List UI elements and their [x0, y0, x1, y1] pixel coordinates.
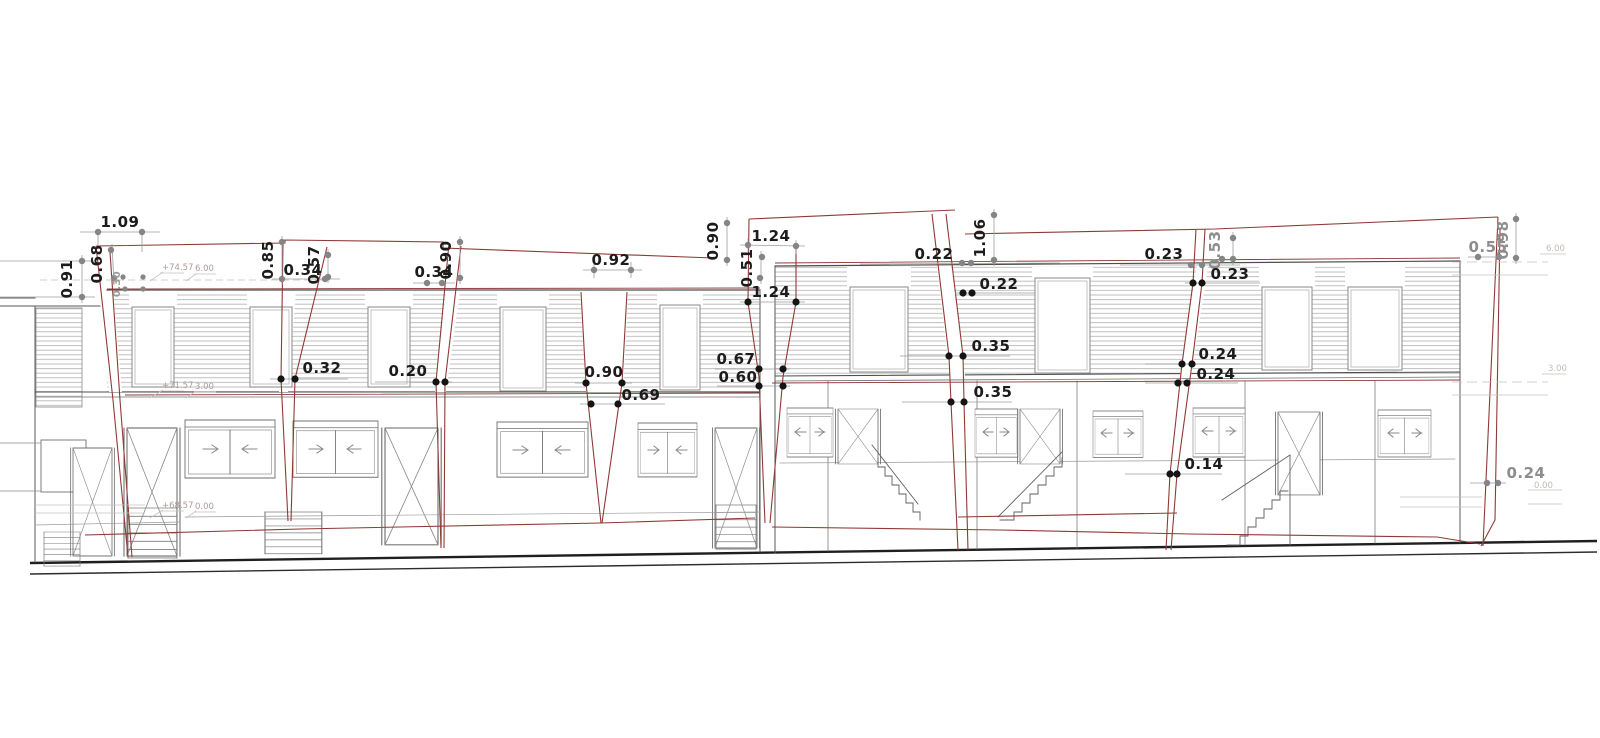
dim-label: 0.60 — [718, 368, 757, 386]
dim-label: 0.91 — [58, 259, 76, 298]
dim-label: 0.22 — [979, 275, 1018, 293]
window — [293, 421, 378, 477]
dim-label: 1.24 — [751, 283, 790, 301]
red-boundary-8 — [1481, 217, 1500, 546]
dim-label: 0.85 — [259, 240, 277, 279]
window — [497, 422, 588, 477]
red-grade-right — [772, 527, 1480, 544]
stairs — [265, 512, 322, 554]
dim-label: 0.35 — [971, 337, 1010, 355]
red-roofline-right-a — [749, 210, 955, 219]
window — [975, 409, 1018, 457]
dim-label: 0.53 — [1206, 230, 1224, 269]
dim-label: 0.24 — [1198, 345, 1237, 363]
entry-door — [712, 428, 759, 548]
elevation-sheet: 1.09 0.91 0.68 0.30 0.85 0.34 0.57 0.34 … — [0, 0, 1600, 738]
level-height-label: 0.00 — [1534, 481, 1553, 491]
entry-door — [1275, 412, 1322, 495]
dim-label: 0.90 — [584, 363, 623, 381]
level-height-label: 6.00 — [1546, 244, 1565, 254]
dim-label: 0.30 — [112, 271, 123, 297]
left-end-unit — [0, 298, 114, 566]
level-height-label: 6.00 — [195, 264, 214, 274]
level-height-label: 0.00 — [195, 502, 214, 512]
dim-label: 0.98 — [1494, 220, 1512, 259]
dim-label: 0.92 — [591, 251, 630, 269]
ground-floor-right — [780, 408, 1455, 545]
dim-label: 0.68 — [88, 244, 106, 283]
dim-label: 1.06 — [971, 218, 989, 257]
dim-label: 0.24 — [1196, 365, 1235, 383]
dim-label: 1.09 — [100, 213, 139, 231]
elevation-drawing: 1.09 0.91 0.68 0.30 0.85 0.34 0.57 0.34 … — [0, 0, 1600, 738]
entry-door — [836, 409, 881, 464]
level-elevation-label: +71.57 — [162, 381, 193, 391]
level-height-label: 3.00 — [1548, 364, 1567, 374]
dim-label: 0.35 — [973, 383, 1012, 401]
ground-floor-left — [35, 420, 760, 558]
left-building — [0, 290, 760, 566]
dim-label: 0.32 — [302, 359, 341, 377]
red-grade-upper — [958, 513, 1177, 517]
dim-label: 1.24 — [751, 227, 790, 245]
exterior-stairs — [872, 445, 920, 520]
window — [185, 420, 275, 478]
dim-label: 0.90 — [437, 240, 455, 279]
window — [1378, 410, 1431, 457]
entry-door — [1018, 409, 1063, 464]
window — [1093, 411, 1143, 457]
entry-door — [71, 448, 115, 556]
dim-label: 0.67 — [716, 350, 755, 368]
window — [787, 408, 833, 457]
dim-label: 0.69 — [621, 386, 660, 404]
dim-label: 0.14 — [1184, 455, 1223, 473]
window — [1193, 408, 1245, 457]
dim-label: 0.20 — [388, 362, 427, 380]
level-height-label: 3.00 — [195, 382, 214, 392]
right-building — [775, 261, 1460, 553]
dim-label: 0.57 — [305, 245, 323, 284]
window — [638, 423, 697, 477]
dim-label: 0.90 — [704, 221, 722, 260]
dim-label: 0.22 — [914, 245, 953, 263]
level-elevation-label: +74.57 — [162, 263, 193, 273]
dim-label: 0.23 — [1210, 265, 1249, 283]
red-roofline-right-b — [965, 217, 1498, 234]
dim-label: 0.23 — [1144, 245, 1183, 263]
level-elevation-label: +68.57 — [162, 501, 193, 511]
entry-door — [124, 428, 180, 556]
dim-label: 0.51 — [738, 248, 756, 287]
dim-label: 0.24 — [1506, 464, 1545, 482]
